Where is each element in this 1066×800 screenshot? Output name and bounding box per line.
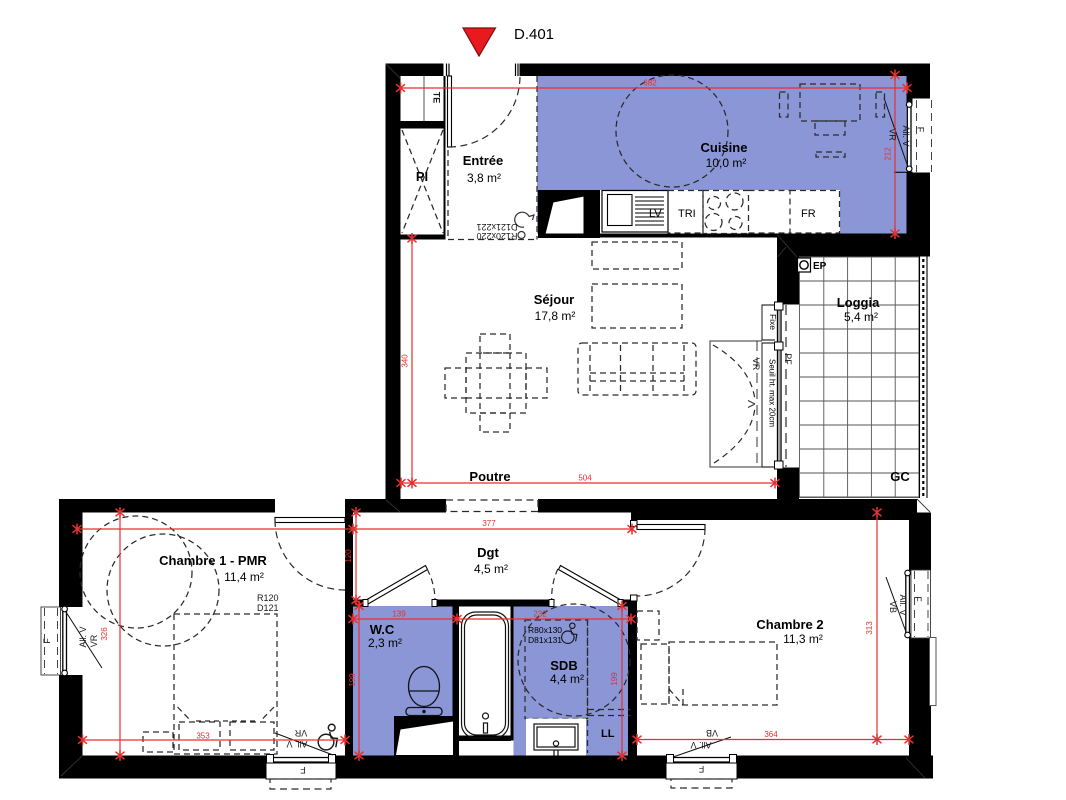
svg-text:D121x221: D121x221 (476, 222, 517, 232)
svg-text:EP: EP (813, 261, 827, 272)
svg-text:199: 199 (610, 672, 619, 686)
svg-text:120: 120 (344, 549, 353, 563)
svg-text:364: 364 (764, 730, 778, 739)
svg-text:Loggia: Loggia (837, 295, 880, 310)
svg-text:PF: PF (783, 353, 793, 365)
svg-text:504: 504 (578, 474, 592, 483)
svg-text:R80x130: R80x130 (528, 625, 562, 635)
svg-text:Chambre 2: Chambre 2 (756, 617, 823, 632)
svg-text:353: 353 (196, 732, 210, 741)
svg-text:All. V: All. V (898, 594, 908, 615)
svg-text:199: 199 (348, 673, 357, 687)
svg-text:F: F (300, 765, 306, 775)
svg-text:Chambre 1 - PMR: Chambre 1 - PMR (159, 553, 267, 568)
svg-text:All. V: All. V (901, 125, 911, 146)
svg-text:Entrée: Entrée (463, 153, 503, 168)
svg-text:4,5 m²: 4,5 m² (474, 562, 508, 576)
svg-text:VB: VB (888, 601, 898, 613)
svg-text:Cuisine: Cuisine (701, 140, 748, 155)
svg-text:VR: VR (294, 728, 307, 738)
svg-text:682: 682 (643, 79, 657, 88)
svg-text:377: 377 (482, 519, 496, 528)
svg-text:17,8 m²: 17,8 m² (535, 309, 576, 323)
svg-text:R120: R120 (257, 593, 279, 603)
svg-text:W.C: W.C (370, 622, 395, 637)
svg-text:GC: GC (890, 469, 910, 484)
svg-text:212: 212 (884, 147, 893, 161)
svg-text:10,0 m²: 10,0 m² (706, 156, 747, 170)
svg-text:232: 232 (533, 610, 547, 619)
svg-text:Séjour: Séjour (534, 292, 574, 307)
svg-text:VR: VR (888, 128, 898, 141)
svg-text:Dgt: Dgt (477, 545, 499, 560)
svg-text:D121: D121 (257, 603, 279, 613)
svg-text:D81x131: D81x131 (528, 635, 562, 645)
svg-text:TE: TE (432, 92, 442, 104)
svg-text:All. V: All. V (78, 626, 88, 647)
svg-text:5,4 m²: 5,4 m² (844, 310, 878, 324)
svg-text:R120x220: R120x220 (476, 231, 517, 241)
svg-text:VR: VR (89, 634, 99, 647)
svg-text:SDB: SDB (550, 658, 577, 673)
svg-text:Fixe: Fixe (768, 314, 778, 330)
svg-text:All. V: All. V (690, 740, 711, 750)
svg-text:LV: LV (649, 208, 662, 220)
svg-text:313: 313 (865, 621, 874, 635)
svg-text:2,3 m²: 2,3 m² (368, 636, 402, 650)
svg-text:F: F (913, 596, 923, 602)
svg-text:11,4 m²: 11,4 m² (224, 570, 264, 584)
svg-text:VR: VR (751, 358, 761, 371)
svg-text:VB: VB (706, 728, 718, 738)
svg-text:F: F (42, 638, 52, 644)
svg-text:TRI: TRI (678, 208, 696, 220)
svg-text:FR: FR (801, 208, 816, 220)
svg-text:3,8 m²: 3,8 m² (467, 171, 501, 185)
svg-text:11,3 m²: 11,3 m² (783, 632, 823, 646)
svg-text:D.401: D.401 (514, 26, 554, 43)
svg-text:PI: PI (416, 169, 428, 184)
svg-text:139: 139 (392, 610, 406, 619)
svg-text:Seuil ht. max 20cm: Seuil ht. max 20cm (768, 359, 777, 427)
svg-text:326: 326 (100, 627, 109, 641)
svg-text:4,4 m²: 4,4 m² (550, 672, 584, 686)
svg-text:Poutre: Poutre (469, 469, 510, 484)
svg-text:All. V: All. V (286, 739, 307, 749)
svg-text:LL: LL (601, 728, 615, 740)
svg-text:F: F (916, 127, 926, 133)
svg-text:340: 340 (401, 354, 410, 368)
svg-text:F: F (698, 764, 704, 774)
